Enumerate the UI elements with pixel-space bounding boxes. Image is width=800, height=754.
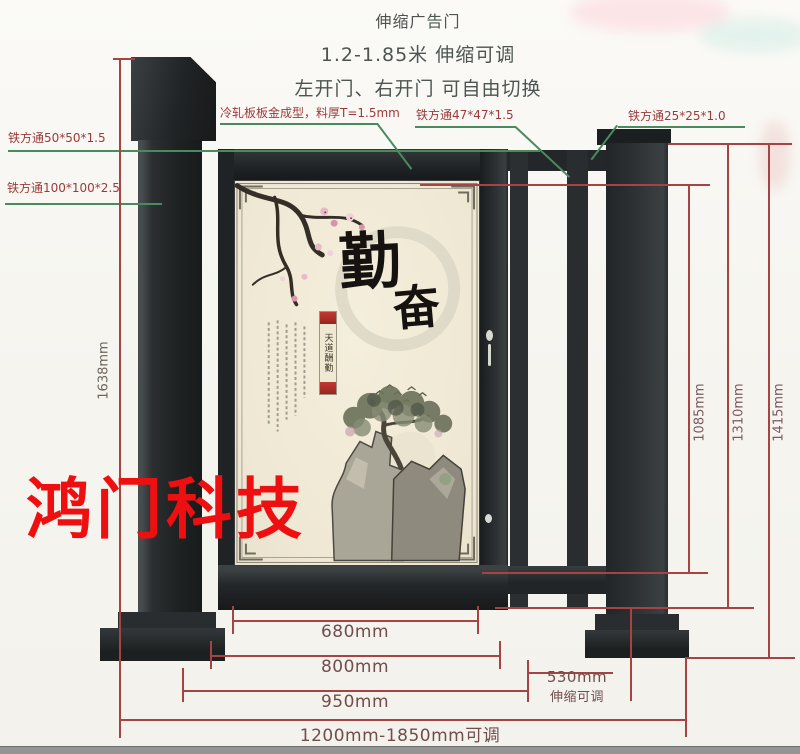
dim-line-1415 xyxy=(768,143,770,657)
telescopic-bar-1 xyxy=(510,150,528,607)
dim-ref-top-inner xyxy=(420,184,710,186)
couplet-cap-bottom xyxy=(320,382,336,394)
gate-leaf-bottom-rail xyxy=(218,565,508,610)
right-pillar-base-lower xyxy=(585,630,689,658)
gate-leaf-top-rail xyxy=(218,149,508,182)
dim-line-left-height xyxy=(119,58,121,738)
dim-text-950: 950mm xyxy=(182,692,528,712)
dim-ref-bottom-1310 xyxy=(495,607,754,609)
dim-text-1638: 1638mm xyxy=(97,331,112,411)
couplet-cap-top xyxy=(320,312,336,324)
dim-text-1085: 1085mm xyxy=(693,373,708,453)
leader-tube100 xyxy=(5,203,162,205)
dim-ref-bottom-1085 xyxy=(482,572,708,574)
dim-line-1085 xyxy=(688,184,690,572)
title-line-1: 伸缩广告门 xyxy=(238,8,598,32)
leader-tube50 xyxy=(8,150,540,152)
label-cold-rolled: 冷轧板板金成型，料厚T=1.5mm xyxy=(220,104,400,121)
leader-tube47-underline xyxy=(415,126,516,128)
leader-tube25-underline xyxy=(618,126,745,128)
dim-text-530: 530mm xyxy=(527,668,627,686)
vertical-script-columns xyxy=(269,320,305,431)
lock-keyhole xyxy=(486,330,493,341)
product-diagram: 伸缩广告门 1.2-1.85米 伸缩可调 左开门、右开门 可自由切换 xyxy=(0,0,800,754)
jpeg-artifact xyxy=(760,120,790,190)
motor-housing-box xyxy=(131,57,216,141)
telescopic-bar-2 xyxy=(567,150,588,607)
telescopic-bottom-rail xyxy=(508,566,612,594)
lock-handle xyxy=(488,344,491,366)
couplet-strip: 天道酬勤 xyxy=(319,311,337,395)
dim-text-range: 1200mm-1850mm可调 xyxy=(100,721,700,746)
jpeg-artifact xyxy=(700,18,800,52)
dim-text-530-note: 伸缩可调 xyxy=(527,686,627,705)
dim-text-800: 800mm xyxy=(210,657,500,677)
lock-screw xyxy=(485,514,492,523)
dim-tick xyxy=(113,58,135,60)
dim-ref-top-outer xyxy=(668,143,792,145)
title-line-3: 左开门、右开门 可自由切换 xyxy=(238,74,598,101)
dim-text-1415: 1415mm xyxy=(772,373,787,453)
label-tube-50: 铁方通50*50*1.5 xyxy=(8,129,106,146)
bottom-edge-strip xyxy=(0,746,800,754)
dim-tick-530-right xyxy=(630,607,632,701)
title-line-2: 1.2-1.85米 伸缩可调 xyxy=(238,40,598,67)
right-pillar xyxy=(606,143,668,621)
label-tube-100: 铁方通100*100*2.5 xyxy=(7,179,120,196)
watermark-text: 鸿门科技 xyxy=(26,456,306,552)
dim-ref-ground xyxy=(685,657,795,659)
dim-line-1310 xyxy=(727,143,729,607)
leader-coldrolled-underline xyxy=(220,123,378,125)
couplet-text: 天道酬勤 xyxy=(322,324,335,382)
label-tube-47: 铁方通47*47*1.5 xyxy=(416,106,514,123)
label-tube-25: 铁方通25*25*1.0 xyxy=(628,107,726,124)
calligraphy-fen: 奋 xyxy=(391,283,442,334)
gate-leaf-right-stile xyxy=(480,149,508,610)
dim-text-1310: 1310mm xyxy=(732,373,747,453)
dim-text-680: 680mm xyxy=(232,622,478,642)
